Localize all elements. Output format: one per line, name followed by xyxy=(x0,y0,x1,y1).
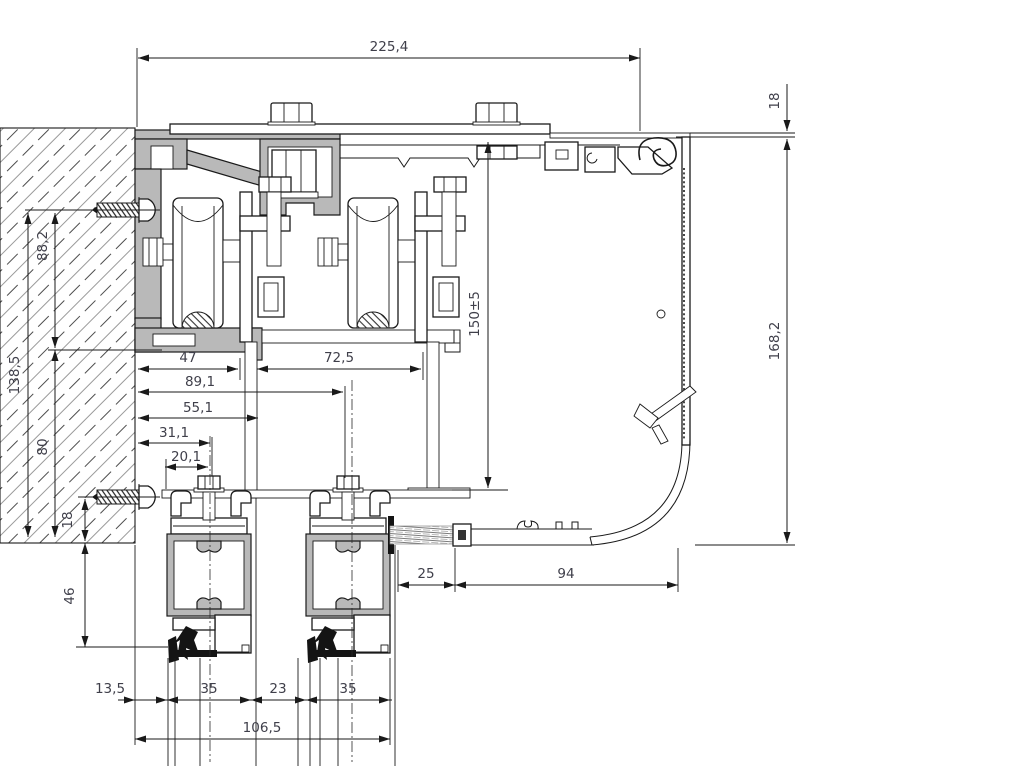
roller-assembly-1 xyxy=(143,177,291,342)
dim-31-1: 31,1 xyxy=(159,425,189,441)
dim-94: 94 xyxy=(557,566,574,582)
dim-top-width: 225,4 xyxy=(370,39,409,55)
dim-left-46: 46 xyxy=(62,587,78,604)
dim-left-88-2: 88,2 xyxy=(35,231,51,261)
dim-left-138-5: 138,5 xyxy=(7,356,23,395)
sash-profile-2 xyxy=(306,476,390,663)
hex-bolt-top-1 xyxy=(268,103,315,125)
hex-bolt-top-2 xyxy=(473,103,520,125)
dim-55-1: 55,1 xyxy=(183,400,213,416)
dim-35-b: 35 xyxy=(339,681,356,697)
hanger-rod-2 xyxy=(427,342,439,488)
masonry-wall-hatched xyxy=(0,128,135,543)
dim-35-a: 35 xyxy=(200,681,217,697)
sash-profile-1 xyxy=(167,476,251,663)
brush-seal xyxy=(388,516,471,554)
t-nut-under-plate xyxy=(477,146,517,159)
dim-23: 23 xyxy=(269,681,286,697)
dim-20-1: 20,1 xyxy=(171,449,201,465)
dim-89-1: 89,1 xyxy=(185,374,215,390)
dim-13-5: 13,5 xyxy=(95,681,125,697)
drawing-stage: 225,4 18 168,2 88,2 138,5 80 18 46 47 72… xyxy=(0,0,1024,768)
dim-106-5: 106,5 xyxy=(243,720,282,736)
cover-profile xyxy=(471,137,696,545)
dim-left-80: 80 xyxy=(35,438,51,455)
dim-150-5: 150±5 xyxy=(467,291,483,337)
dim-right-168-2: 168,2 xyxy=(767,322,783,361)
dim-72-5: 72,5 xyxy=(324,350,354,366)
dim-25: 25 xyxy=(417,566,434,582)
dim-47: 47 xyxy=(179,350,196,366)
dim-left-18: 18 xyxy=(60,511,76,528)
technical-drawing-canvas: 225,4 18 168,2 88,2 138,5 80 18 46 47 72… xyxy=(0,0,1024,768)
dim-right-18: 18 xyxy=(767,92,783,109)
